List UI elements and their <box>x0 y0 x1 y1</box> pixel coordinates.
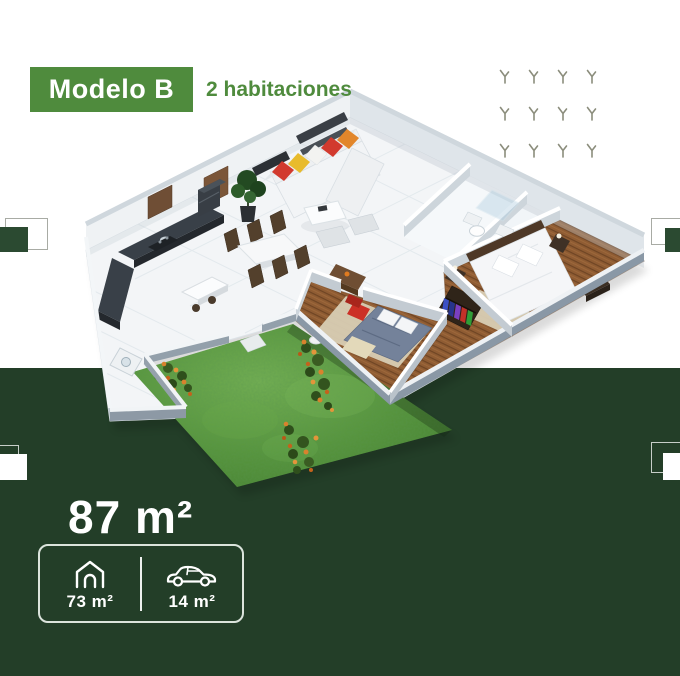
car-icon <box>164 559 220 589</box>
rooms-subtitle: 2 habitaciones <box>206 78 352 102</box>
house-icon <box>72 559 108 589</box>
model-badge-label: Modelo B <box>49 74 175 105</box>
model-badge: Modelo B <box>30 67 193 112</box>
parking-area-cell: 14 m² <box>142 546 242 621</box>
house-area-cell: 73 m² <box>40 546 140 621</box>
parking-area-value: 14 m² <box>169 592 216 612</box>
total-area-label: 87 m² <box>68 490 193 544</box>
house-area-value: 73 m² <box>67 592 114 612</box>
flyer-page: Modelo B 2 habitaciones 87 m² 73 m² 14 m… <box>0 0 680 676</box>
area-spec-box: 73 m² 14 m² <box>38 544 244 623</box>
